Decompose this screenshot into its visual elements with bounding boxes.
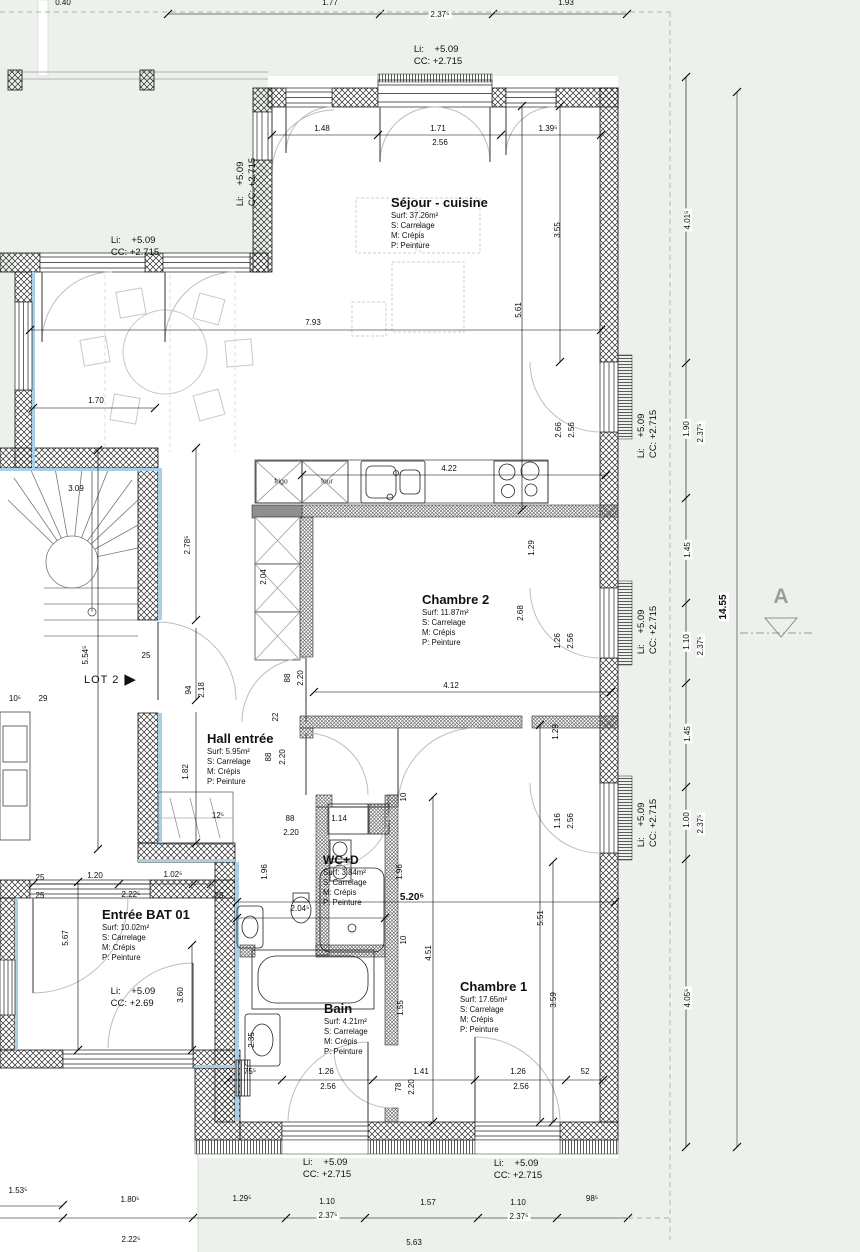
dim-label: 1.82 [182, 764, 190, 780]
dim-label: 1.70 [88, 397, 104, 405]
dim-label: 12⁵ [212, 812, 224, 820]
level-label: Li: +5.09CC: +2.715 [111, 235, 159, 259]
room-label-wc-d: WC+DSurf: 3.84m²S: CarrelageM: CrépisP: … [323, 854, 367, 908]
dim-label: 2.37⁵ [697, 635, 705, 658]
dim-label: 1.10 [319, 1198, 335, 1206]
dim-label: 5.63 [406, 1239, 422, 1247]
dim-label: 4.12 [443, 682, 459, 690]
dim-label: 5.20⁵ [400, 893, 424, 903]
dim-label: 2.18 [198, 682, 206, 698]
oven-label: four [321, 479, 333, 486]
dim-label: 1.39⁵ [539, 125, 558, 133]
dim-label: 1.29 [528, 540, 536, 556]
dim-label: 2.56 [320, 1083, 336, 1091]
dim-label: 1.41 [413, 1068, 429, 1076]
dim-label: 4.01⁵ [684, 209, 692, 232]
dim-label: 88 [286, 815, 295, 823]
room-label-chambre-1: Chambre 1Surf: 17.65m²S: CarrelageM: Cré… [460, 980, 527, 1035]
labels-layer: LOT 2▶ A frigo four 0.401.771.932.37⁵1.4… [0, 0, 860, 1252]
dim-label: 3.59 [550, 992, 558, 1008]
dim-label: 7.93 [305, 319, 321, 327]
dim-label: 2.56 [430, 139, 450, 147]
dim-label: 25 [36, 874, 45, 882]
dim-label: 1.48 [314, 125, 330, 133]
dim-label: 2.20 [279, 749, 287, 765]
dim-label: 4.51 [425, 945, 433, 961]
dim-label: 2.56 [567, 813, 575, 829]
dim-label: 5.61 [515, 302, 523, 318]
level-label: Li: +5.09CC: +2.715 [414, 44, 462, 68]
level-label: Li: +5.09CC: +2.715 [494, 1158, 542, 1182]
level-label: Li: +5.09CC: +2.715 [636, 410, 660, 458]
level-label: Li: +5.09CC: +2.715 [636, 606, 660, 654]
dim-label: 1.96 [261, 864, 269, 880]
dim-label: 1.57 [420, 1199, 436, 1207]
dim-label: 1.90 [683, 419, 691, 439]
dim-label: 1.16 [554, 813, 562, 829]
dim-label: 25 [215, 892, 224, 900]
dim-label: 1.45 [684, 724, 692, 744]
dim-label: 2.37⁵ [429, 11, 452, 19]
dim-label: 1.10 [510, 1199, 526, 1207]
dim-label: 2.04⁵ [291, 905, 310, 913]
dim-label: 1.80⁵ [121, 1196, 140, 1204]
dim-label: 2.56 [567, 633, 575, 649]
dim-label: 2.20 [297, 670, 305, 686]
room-label-sejour-cuisine: Séjour - cuisineSurf: 37.26m²S: Carrelag… [391, 196, 488, 251]
dim-label: 1.77 [322, 0, 338, 7]
dim-label: 29 [39, 695, 48, 703]
dim-label: 75⁵ [244, 1068, 256, 1076]
dim-label: 25 [140, 652, 153, 660]
dim-label: 2.37⁵ [697, 422, 705, 445]
dim-label: 2.56 [513, 1083, 529, 1091]
dim-label: 5.54⁵ [82, 646, 90, 665]
dim-label: 88 [284, 674, 292, 683]
dim-label: 1.26 [510, 1068, 526, 1076]
dim-label: 1.14 [331, 815, 347, 823]
dim-label: 1.45 [684, 540, 692, 560]
dim-label: 10 [400, 793, 408, 802]
dim-label: 0.40 [55, 0, 71, 7]
dim-label: 1.02⁵ [164, 871, 183, 879]
lot2-label: LOT 2▶ [84, 672, 137, 687]
level-label: Li: +5.09CC: +2.715 [303, 1157, 351, 1181]
dim-label: 2.20 [408, 1079, 416, 1095]
dim-label: 1.26 [318, 1068, 334, 1076]
dim-label: 5.51 [537, 910, 545, 926]
dim-label: 1.29 [552, 724, 560, 740]
dim-label: 2.78⁵ [184, 536, 192, 555]
lot2-arrow-icon: ▶ [124, 672, 137, 687]
dim-label: 1.96 [396, 864, 404, 880]
dim-label: 94 [185, 686, 193, 695]
dim-label: 1.20 [87, 872, 103, 880]
dim-label: 3.09 [68, 485, 84, 493]
dim-label: 1.26 [554, 633, 562, 649]
level-label: Li: +5.09CC: +2.715 [636, 799, 660, 847]
dim-label: 14.55 [719, 592, 729, 621]
dim-label: 5.67 [62, 930, 70, 946]
dim-label: 2.22⁵ [122, 891, 141, 899]
dim-label: 2.37⁵ [697, 813, 705, 836]
floor-plan: LOT 2▶ A frigo four 0.401.771.932.37⁵1.4… [0, 0, 860, 1252]
lot2-text: LOT 2 [84, 674, 119, 686]
room-label-chambre-2: Chambre 2Surf: 11.87m²S: CarrelageM: Cré… [422, 593, 489, 648]
level-label: Li: +5.09CC: +2.715 [235, 158, 259, 206]
dim-label: 3.55 [554, 222, 562, 238]
dim-label: 2.35 [248, 1032, 256, 1048]
room-label-hall-entree: Hall entréeSurf: 5.95m²S: CarrelageM: Cr… [207, 732, 273, 787]
dim-label: 2.37⁵ [317, 1212, 340, 1220]
dim-label: 3.60 [177, 987, 185, 1003]
dim-label: 4.05⁵ [684, 987, 692, 1010]
dim-label: 10⁵ [9, 695, 21, 703]
dim-label: 1.71 [430, 125, 446, 133]
dim-label: 2.56 [568, 422, 576, 438]
dim-label: 2.37⁵ [508, 1213, 531, 1221]
room-label-bain: BainSurf: 4.21m²S: CarrelageM: CrépisP: … [324, 1002, 368, 1057]
dim-label: 1.53⁵ [9, 1187, 28, 1195]
dim-label: 2.20 [283, 829, 299, 837]
dim-label: 25 [36, 892, 45, 900]
dim-label: 78 [395, 1083, 403, 1092]
section-marker-a: A [773, 585, 788, 609]
dim-label: 52 [581, 1068, 590, 1076]
dim-label: 10 [400, 936, 408, 945]
dim-label: 2.68 [517, 605, 525, 621]
dim-label: 1.93 [558, 0, 574, 7]
dim-label: 2.22⁵ [122, 1236, 141, 1244]
level-label: Li: +5.09CC: +2.69 [111, 986, 156, 1010]
dim-label: 2.04 [260, 569, 268, 585]
dim-label: 22 [272, 713, 280, 722]
dim-label: 1.00 [683, 810, 691, 830]
fridge-label: frigo [274, 479, 288, 486]
dim-label: 2.66 [555, 422, 563, 438]
dim-label: 1.55 [397, 1000, 405, 1016]
dim-label: 4.22 [441, 465, 457, 473]
dim-label: 98⁵ [586, 1195, 598, 1203]
room-label-entree-bat-01: Entrée BAT 01Surf: 10.02m²S: CarrelageM:… [102, 908, 190, 963]
dim-label: 1.10 [683, 632, 691, 652]
dim-label: 1.29⁵ [233, 1195, 252, 1203]
